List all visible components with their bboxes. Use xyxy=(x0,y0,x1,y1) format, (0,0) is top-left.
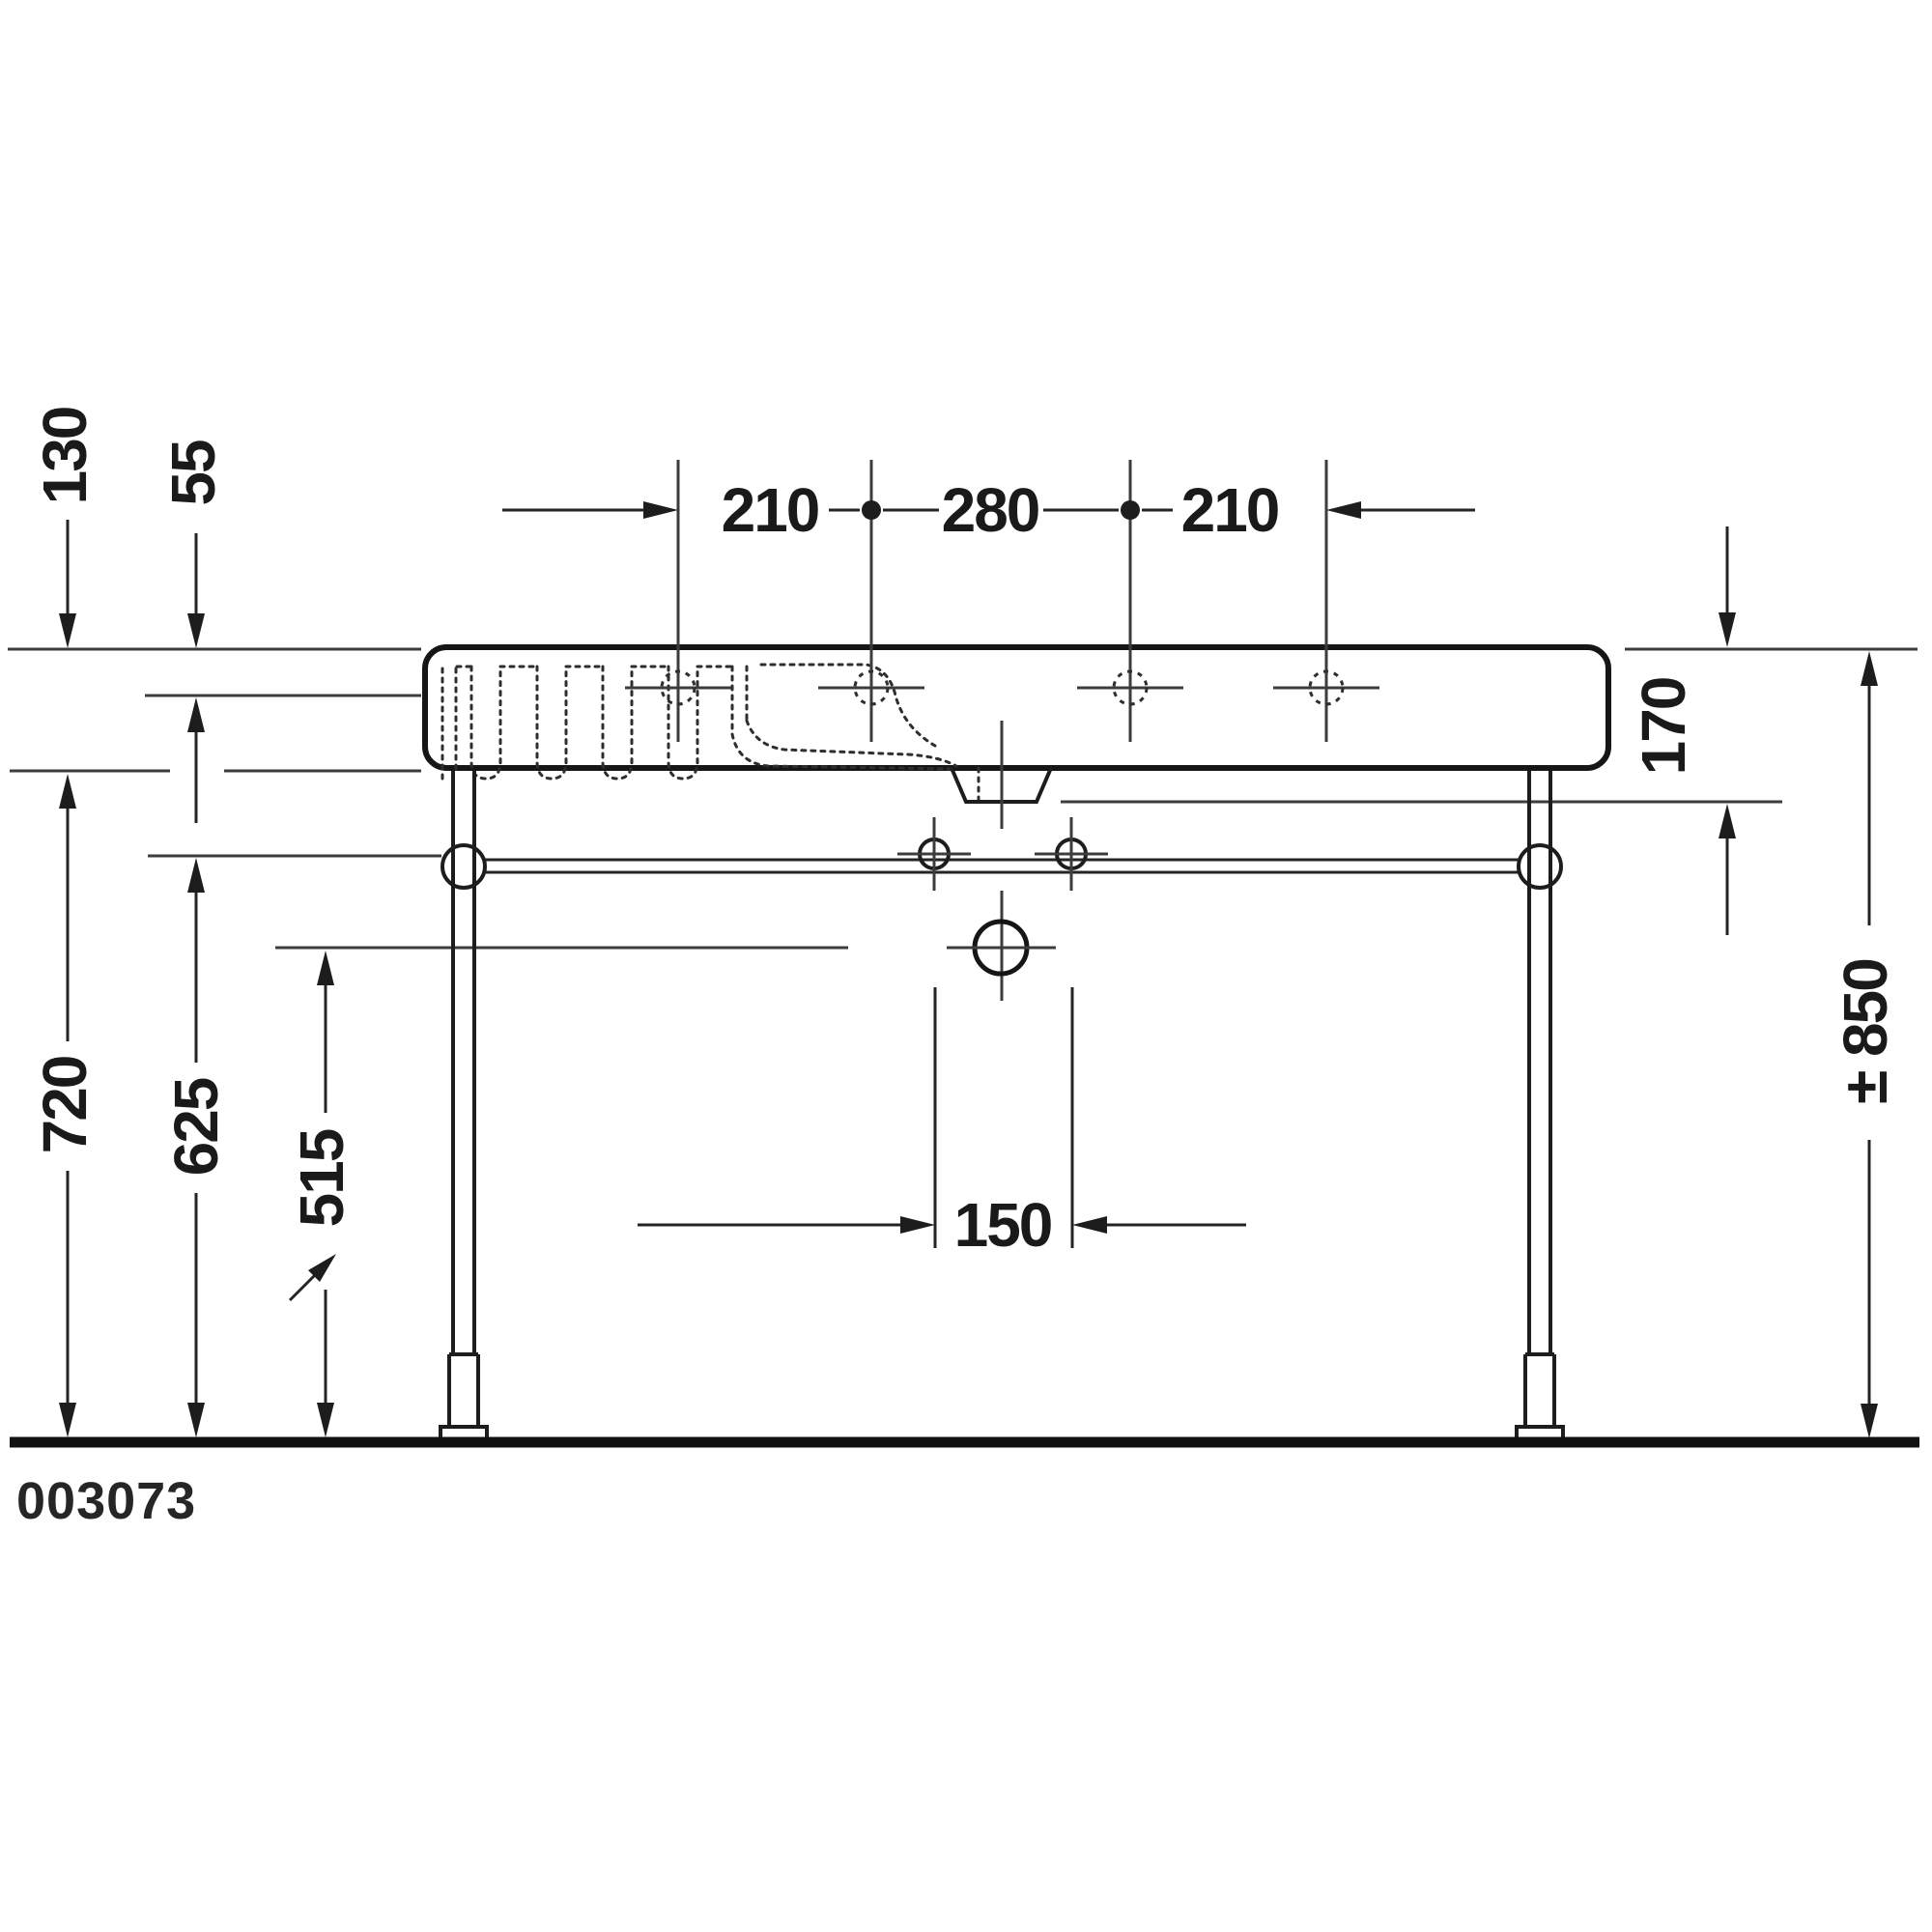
dim-55-625: 55 625 xyxy=(158,440,231,1437)
dim-515-label: 515 xyxy=(287,1129,356,1227)
dim-850: ± 850 xyxy=(1831,651,1900,1438)
arrow-down-icon xyxy=(59,1403,76,1437)
console-frame xyxy=(440,771,1563,1439)
dim-55-label: 55 xyxy=(158,440,228,506)
dim-210-right-label: 210 xyxy=(1181,475,1279,545)
bowl-rib-3 xyxy=(603,667,632,779)
model-number: 003073 xyxy=(16,1472,196,1530)
dim-170: 170 xyxy=(1629,526,1736,935)
left-rail-ring xyxy=(442,845,485,888)
washbasin xyxy=(425,647,1608,802)
chain-dot-icon xyxy=(862,500,881,520)
dim-625-label: 625 xyxy=(161,1078,231,1176)
dim-850-label: ± 850 xyxy=(1831,959,1900,1104)
towel-rail xyxy=(442,845,1561,888)
right-rail-ring xyxy=(1519,845,1561,888)
arrow-left-icon xyxy=(1072,1216,1107,1234)
arrow-down-icon xyxy=(187,1403,205,1437)
left-leg xyxy=(440,771,487,1439)
arrow-up-icon xyxy=(59,774,76,809)
washbasin-dimension-drawing: 210 280 210 130 720 55 625 xyxy=(0,0,1932,1932)
arrow-down-icon xyxy=(59,613,76,648)
arrow-right-icon xyxy=(643,501,678,519)
dim-chain-holes: 210 280 210 xyxy=(502,475,1475,545)
arrow-up-icon xyxy=(187,697,205,732)
arrow-down-icon xyxy=(317,1403,334,1437)
bowl-slope-upper xyxy=(747,721,956,766)
dim-170-label: 170 xyxy=(1629,678,1698,776)
dim-150-label: 150 xyxy=(954,1190,1052,1260)
arrow-up-icon xyxy=(317,951,334,985)
arrow-down-icon xyxy=(1861,1404,1878,1438)
dim-720-label: 720 xyxy=(30,1057,99,1154)
arrow-left-icon xyxy=(1326,501,1361,519)
arrow-up-icon xyxy=(1861,651,1878,686)
dim-515: 515 xyxy=(287,951,356,1437)
inner-bowl-dashed-contour xyxy=(442,665,979,800)
diagonal-leader-line xyxy=(290,1274,316,1300)
technical-drawing-sheet: 210 280 210 130 720 55 625 xyxy=(0,0,1932,1932)
arrow-down-icon xyxy=(1719,612,1736,647)
chain-dot-icon xyxy=(1121,500,1140,520)
arrow-down-icon xyxy=(187,613,205,648)
bowl-right-contour xyxy=(761,665,935,746)
right-leg xyxy=(1517,771,1563,1439)
dim-130-720: 130 720 xyxy=(30,408,99,1437)
dim-130-label: 130 xyxy=(30,408,99,505)
bowl-rib-2 xyxy=(537,667,566,779)
bowl-rib-1 xyxy=(471,667,500,779)
arrow-up-icon xyxy=(1719,804,1736,838)
dim-210-left-label: 210 xyxy=(722,475,819,545)
arrow-right-icon xyxy=(900,1216,935,1234)
arrow-up-icon xyxy=(187,858,205,893)
dim-280-label: 280 xyxy=(942,475,1039,545)
dim-150: 150 xyxy=(638,987,1246,1260)
